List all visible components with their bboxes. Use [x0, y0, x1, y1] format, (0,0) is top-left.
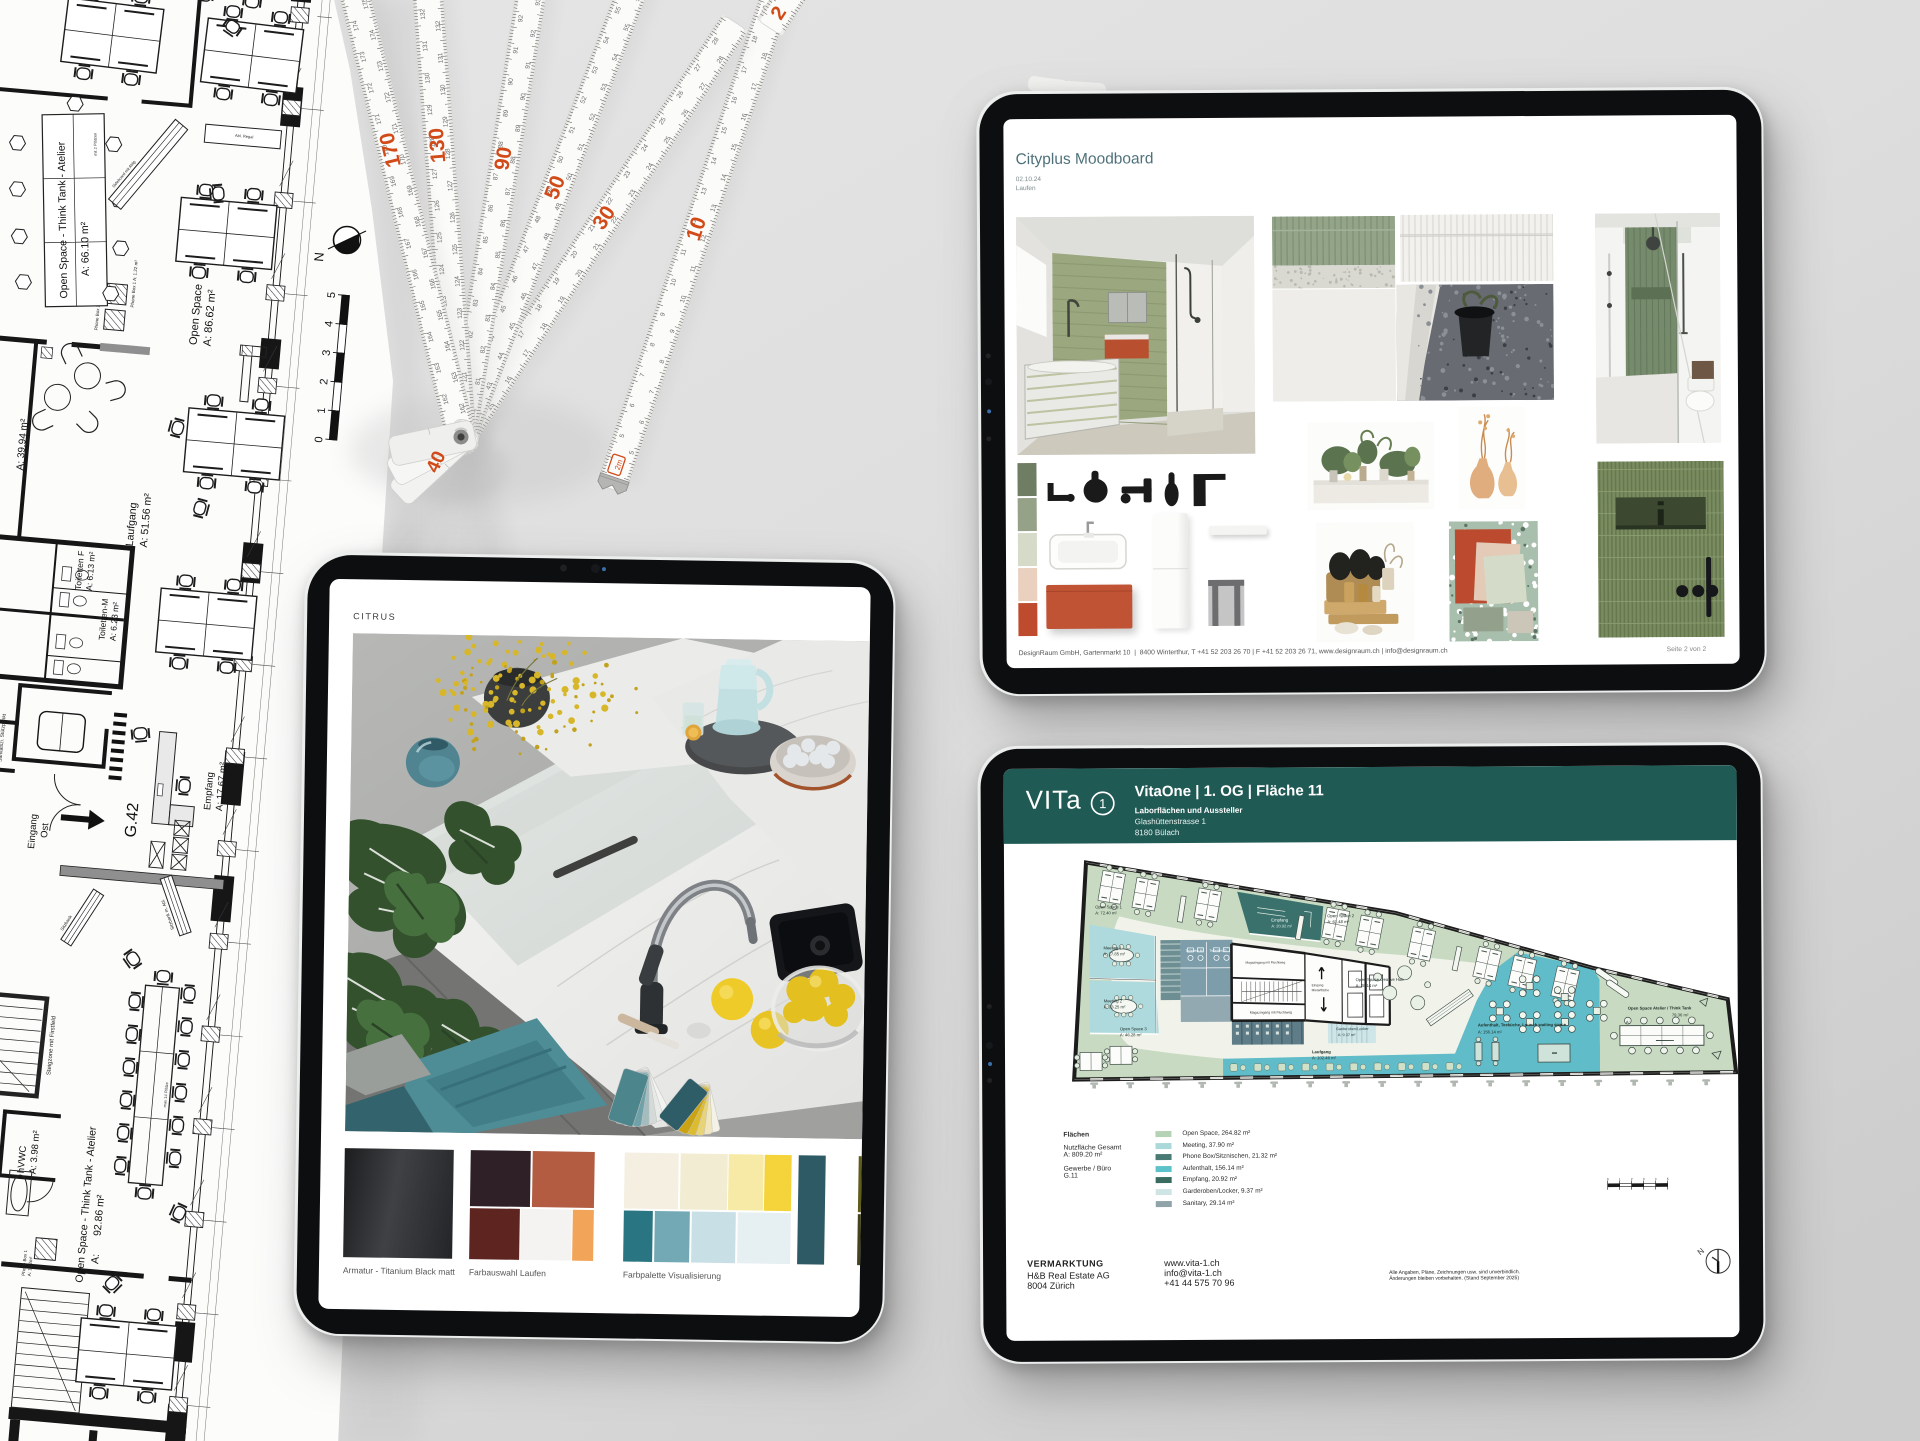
- svg-text:90: 90: [519, 92, 527, 101]
- svg-text:Garderoben/Locker: Garderoben/Locker: [1336, 1027, 1369, 1031]
- svg-text:127: 127: [431, 168, 439, 180]
- svg-text:N: N: [1696, 1246, 1706, 1257]
- svg-text:131: 131: [422, 40, 430, 52]
- svg-text:Aufenthalt, Teeküche, Lounch w: Aufenthalt, Teeküche, Lounch waiting spa…: [1478, 1022, 1567, 1027]
- svg-text:84: 84: [489, 282, 497, 291]
- svg-text:87: 87: [504, 187, 512, 196]
- svg-text:1: 1: [1619, 1177, 1621, 1181]
- svg-text:91: 91: [512, 46, 520, 55]
- svg-text:Open Space 1: Open Space 1: [1095, 904, 1122, 909]
- svg-text:5: 5: [1667, 1177, 1669, 1181]
- svg-text:130: 130: [425, 127, 451, 164]
- svg-text:Open Space Atelier / Think Tan: Open Space Atelier / Think Tank: [1628, 1005, 1692, 1010]
- svg-text:3: 3: [321, 349, 333, 356]
- svg-text:Eingang: Eingang: [1312, 983, 1324, 987]
- svg-text:87: 87: [492, 172, 500, 181]
- svg-text:4: 4: [1655, 1177, 1657, 1181]
- svg-text:83: 83: [484, 314, 492, 323]
- svg-text:mit 2 Plätzen: mit 2 Plätzen: [92, 133, 97, 156]
- svg-text:125: 125: [451, 243, 459, 255]
- svg-text:0: 0: [1607, 1177, 1609, 1181]
- svg-text:126: 126: [449, 212, 457, 224]
- svg-text:89: 89: [502, 109, 510, 118]
- svg-text:A:: A:: [1626, 1020, 1630, 1025]
- svg-text:3: 3: [1643, 1177, 1645, 1181]
- svg-text:2: 2: [1631, 1177, 1633, 1181]
- svg-text:A: 20.92 m²: A: 20.92 m²: [1271, 923, 1292, 928]
- svg-text:91: 91: [524, 61, 532, 70]
- svg-text:84: 84: [477, 267, 485, 276]
- svg-text:A: 9.37 m²: A: 9.37 m²: [1338, 1033, 1356, 1037]
- svg-text:A:: A:: [89, 1253, 102, 1264]
- svg-text:Open Space 3: Open Space 3: [1120, 1026, 1147, 1031]
- svg-text:124: 124: [454, 275, 462, 287]
- svg-text:Open Space 2: Open Space 2: [1327, 913, 1354, 918]
- svg-text:Empfang: Empfang: [1271, 917, 1288, 922]
- svg-text:A: 28.14: A: 28.14 m²: [1356, 983, 1378, 988]
- svg-text:5: 5: [326, 291, 338, 298]
- svg-text:92: 92: [529, 29, 537, 38]
- svg-text:N: N: [311, 252, 327, 263]
- svg-text:Laufgang: Laufgang: [1312, 1049, 1331, 1054]
- svg-text:130: 130: [424, 72, 432, 84]
- svg-text:A: 66.10 m²: A: 66.10 m²: [79, 221, 92, 276]
- svg-text:A: 61.48 m²: A: 61.48 m²: [1327, 919, 1349, 924]
- svg-text:86: 86: [499, 219, 507, 228]
- svg-text:126: 126: [434, 200, 442, 212]
- svg-text:132: 132: [435, 20, 443, 32]
- svg-text:85: 85: [494, 251, 502, 260]
- svg-text:89: 89: [514, 124, 522, 133]
- svg-text:A: 46.28 m²: A: 46.28 m²: [1120, 1032, 1142, 1037]
- svg-text:Magazingang mit Fluchtweg: Magazingang mit Fluchtweg: [1246, 960, 1286, 964]
- svg-text:0: 0: [313, 436, 325, 443]
- svg-text:Ost: Ost: [39, 822, 51, 838]
- svg-text:129: 129: [426, 104, 434, 116]
- svg-text:Mieterfläche: Mieterfläche: [1312, 988, 1330, 992]
- svg-text:130: 130: [440, 84, 448, 96]
- svg-text:Toiletten D: Toiletten D: [1209, 949, 1226, 953]
- svg-text:Meeting 1: Meeting 1: [1103, 945, 1122, 950]
- svg-text:132: 132: [419, 8, 427, 20]
- svg-text:92: 92: [517, 14, 525, 23]
- svg-text:A: 17.85 m²: A: 17.85 m²: [1103, 951, 1125, 956]
- svg-text:A: 33.25 m²: A: 33.25 m²: [1104, 1004, 1126, 1009]
- svg-text:A: 72.40 m²: A: 72.40 m²: [1095, 910, 1117, 915]
- svg-text:1: 1: [1099, 796, 1106, 811]
- svg-text:129: 129: [442, 116, 450, 128]
- svg-text:90: 90: [507, 77, 515, 86]
- svg-text:93: 93: [534, 0, 542, 6]
- svg-text:85: 85: [482, 235, 490, 244]
- svg-text:79.36 m²: 79.36 m²: [1672, 1012, 1689, 1017]
- svg-text:G.42: G.42: [122, 802, 142, 838]
- svg-text:90: 90: [490, 145, 516, 172]
- svg-text:A:: A: 156.14 m²: [1478, 1029, 1503, 1034]
- svg-text:Meeting 2: Meeting 2: [1104, 998, 1123, 1003]
- svg-text:127: 127: [447, 180, 455, 192]
- svg-text:86: 86: [487, 204, 495, 213]
- svg-text:A: 102.46 m²: A: 102.46 m²: [1312, 1055, 1337, 1060]
- svg-text:Open Space creative Hub: Open Space creative Hub: [1356, 977, 1405, 982]
- svg-text:4: 4: [323, 320, 335, 327]
- svg-text:131: 131: [437, 52, 445, 64]
- svg-text:2: 2: [318, 378, 330, 385]
- svg-text:Toiletten H: Toiletten H: [1185, 949, 1202, 953]
- svg-text:1: 1: [316, 407, 328, 414]
- svg-text:Magazingang mit Fluchtweg: Magazingang mit Fluchtweg: [1250, 1010, 1292, 1014]
